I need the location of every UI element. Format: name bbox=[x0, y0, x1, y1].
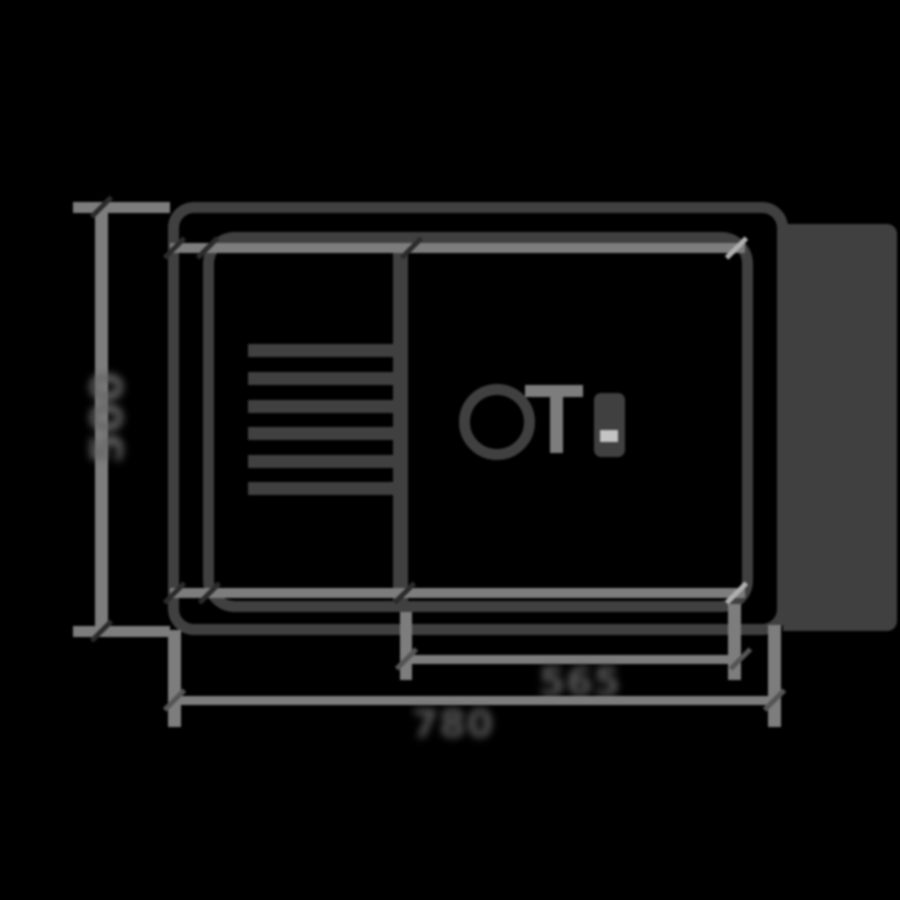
drainboard-ridge bbox=[248, 400, 398, 413]
bowl-divider bbox=[393, 232, 408, 612]
accessory-marking bbox=[594, 393, 625, 457]
drain-hole-icon bbox=[459, 384, 535, 460]
overall-dim-label: 780 bbox=[403, 702, 503, 746]
top-reference-line bbox=[170, 243, 745, 253]
overall-dim-extension-left bbox=[168, 630, 181, 727]
tap-hole-marking-stem bbox=[550, 385, 563, 453]
overall-dim-extension-right bbox=[768, 625, 781, 727]
drainboard-ridge bbox=[248, 427, 398, 440]
bottom-reference-line bbox=[170, 588, 745, 598]
height-dim-value: 500 bbox=[82, 371, 133, 463]
technical-drawing: 500 565 780 bbox=[0, 0, 900, 900]
drainboard-ridge bbox=[248, 372, 398, 385]
height-dim-label: 500 bbox=[48, 357, 168, 477]
drainboard-ridge bbox=[248, 455, 398, 468]
bowl-dim-extension-left bbox=[400, 612, 412, 680]
accessory-marking-notch bbox=[600, 430, 618, 442]
height-dim-extension-bottom bbox=[73, 626, 170, 637]
height-dim-extension-top bbox=[73, 202, 170, 213]
right-side-block bbox=[783, 224, 897, 631]
drainboard-ridge bbox=[248, 482, 398, 495]
drainboard-ridge bbox=[248, 344, 398, 357]
